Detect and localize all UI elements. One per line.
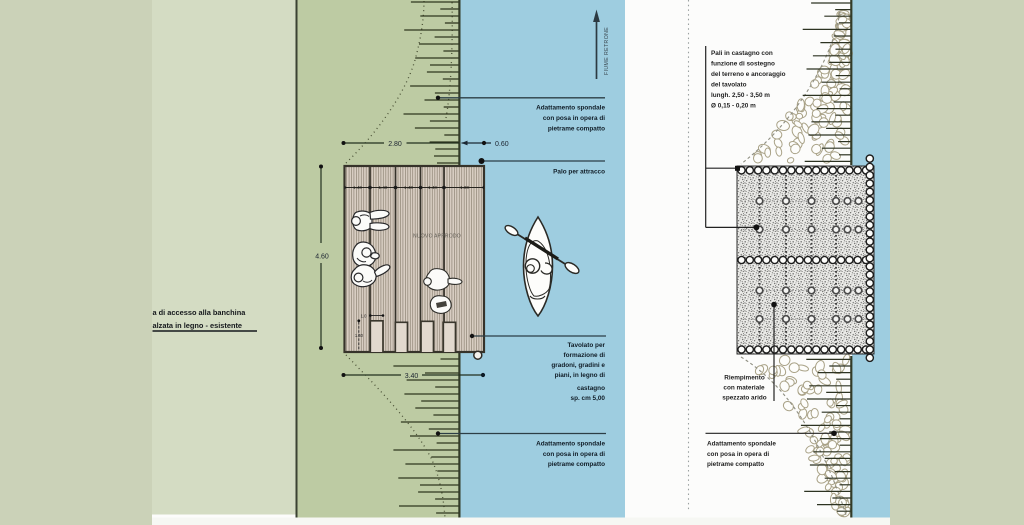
svg-text:NUOVO APPRODO: NUOVO APPRODO xyxy=(413,234,461,240)
svg-text:del terreno e ancoraggio: del terreno e ancoraggio xyxy=(711,71,786,78)
svg-text:1.40: 1.40 xyxy=(379,185,388,190)
svg-text:funzione di sostegno: funzione di sostegno xyxy=(711,61,775,68)
svg-text:formazione di: formazione di xyxy=(563,352,605,359)
svg-text:Palo per attracco: Palo per attracco xyxy=(553,169,605,176)
svg-text:Riempimento: Riempimento xyxy=(724,375,765,382)
svg-text:pietrame compatto: pietrame compatto xyxy=(548,461,605,468)
svg-text:gradoni, gradini e: gradoni, gradini e xyxy=(551,362,605,369)
svg-text:1.40: 1.40 xyxy=(353,185,362,190)
svg-text:castagno: castagno xyxy=(577,385,605,392)
svg-text:con posa in opera di: con posa in opera di xyxy=(707,451,769,458)
svg-text:pietrame compatto: pietrame compatto xyxy=(548,126,605,133)
svg-text:1.40: 1.40 xyxy=(428,185,437,190)
svg-text:Pali in castagno con: Pali in castagno con xyxy=(711,50,773,57)
svg-text:0.60: 0.60 xyxy=(495,141,509,148)
svg-text:piani, in legno di: piani, in legno di xyxy=(555,372,606,379)
svg-text:1.00: 1.00 xyxy=(460,185,469,190)
svg-text:Ø 0,15 - 0,20 m: Ø 0,15 - 0,20 m xyxy=(711,103,756,110)
svg-text:con materiale: con materiale xyxy=(723,385,765,392)
svg-text:sp. cm 5,00: sp. cm 5,00 xyxy=(571,395,606,402)
svg-text:Adattamento spondale: Adattamento spondale xyxy=(707,441,776,448)
svg-text:spezzato arido: spezzato arido xyxy=(722,395,766,402)
svg-text:lungh. 2,50 - 3,50 m: lungh. 2,50 - 3,50 m xyxy=(711,92,770,99)
svg-text:2.80: 2.80 xyxy=(388,141,402,148)
svg-text:1.40: 1.40 xyxy=(355,333,364,338)
svg-text:3.40: 3.40 xyxy=(405,373,419,380)
svg-text:con posa in opera di: con posa in opera di xyxy=(543,115,605,122)
svg-text:alzata in legno - esistente: alzata in legno - esistente xyxy=(153,321,243,330)
svg-text:con posa in opera di: con posa in opera di xyxy=(543,451,605,458)
svg-text:a di accesso alla banchina: a di accesso alla banchina xyxy=(153,308,247,317)
svg-text:pietrame compatto: pietrame compatto xyxy=(707,461,764,468)
svg-text:FIUME RETRONE: FIUME RETRONE xyxy=(604,27,610,75)
svg-text:4.60: 4.60 xyxy=(315,254,329,261)
svg-text:1.40: 1.40 xyxy=(404,185,413,190)
svg-text:Tavolato per: Tavolato per xyxy=(567,342,605,349)
svg-text:Adattamento spondale: Adattamento spondale xyxy=(536,441,605,448)
svg-text:1.0: 1.0 xyxy=(361,314,367,319)
svg-text:Adattamento spondale: Adattamento spondale xyxy=(536,105,605,112)
svg-text:del tavolato: del tavolato xyxy=(711,82,747,89)
